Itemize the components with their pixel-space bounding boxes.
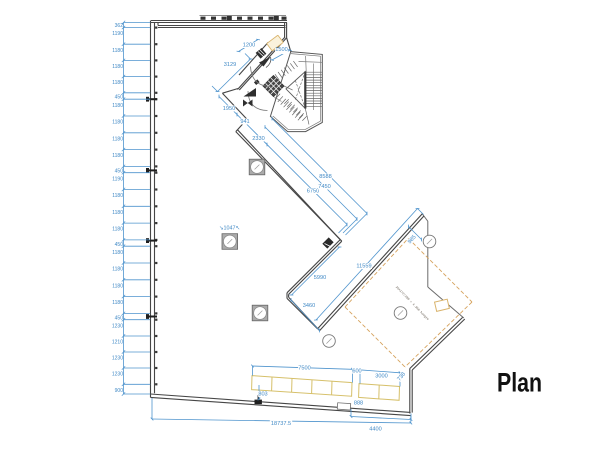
svg-text:18737.5: 18737.5 (271, 421, 291, 427)
svg-text:941: 941 (240, 119, 249, 125)
svg-text:3000: 3000 (375, 374, 387, 380)
svg-text:1180: 1180 (112, 153, 123, 159)
svg-text:1190: 1190 (112, 176, 123, 182)
svg-text:450: 450 (115, 242, 124, 248)
svg-text:1180: 1180 (112, 136, 123, 142)
svg-text:1950: 1950 (223, 106, 235, 112)
svg-text:803: 803 (258, 392, 267, 398)
svg-text:5990: 5990 (314, 275, 326, 281)
svg-text:1180: 1180 (112, 283, 123, 289)
svg-text:3129: 3129 (224, 62, 236, 68)
svg-text:900: 900 (115, 388, 124, 394)
svg-text:600: 600 (352, 368, 361, 374)
svg-text:1180: 1180 (112, 250, 123, 256)
svg-text:450: 450 (115, 315, 124, 321)
svg-text:2330: 2330 (252, 136, 264, 142)
svg-text:1180: 1180 (112, 80, 123, 86)
svg-text:1180: 1180 (112, 210, 123, 216)
svg-text:362: 362 (115, 23, 124, 29)
svg-text:1180: 1180 (112, 300, 123, 306)
svg-text:1230: 1230 (112, 372, 123, 378)
svg-text:450: 450 (115, 168, 124, 174)
svg-text:1180: 1180 (112, 227, 123, 233)
svg-text:1230: 1230 (112, 356, 123, 362)
svg-text:1180: 1180 (112, 267, 123, 273)
svg-text:Plan: Plan (497, 368, 542, 398)
svg-text:1210: 1210 (112, 340, 123, 346)
svg-text:7500: 7500 (298, 366, 310, 372)
svg-text:3460: 3460 (303, 303, 315, 309)
svg-text:1500: 1500 (275, 47, 287, 53)
svg-text:888: 888 (354, 401, 363, 407)
svg-text:1200: 1200 (243, 43, 255, 49)
svg-text:985: 985 (407, 234, 418, 245)
svg-text:1180: 1180 (112, 193, 123, 199)
svg-text:1180: 1180 (112, 103, 123, 109)
svg-text:450: 450 (115, 95, 124, 101)
svg-text:1230: 1230 (112, 323, 123, 329)
svg-text:1190: 1190 (112, 31, 123, 37)
svg-text:8588: 8588 (319, 174, 331, 180)
svg-text:↘1047↖: ↘1047↖ (219, 226, 240, 232)
svg-text:7450: 7450 (318, 184, 330, 190)
svg-text:4400: 4400 (369, 427, 381, 433)
svg-text:11559: 11559 (356, 264, 371, 270)
svg-text:1180: 1180 (112, 120, 123, 126)
svg-text:1180: 1180 (112, 48, 123, 54)
svg-text:1180: 1180 (112, 64, 123, 70)
